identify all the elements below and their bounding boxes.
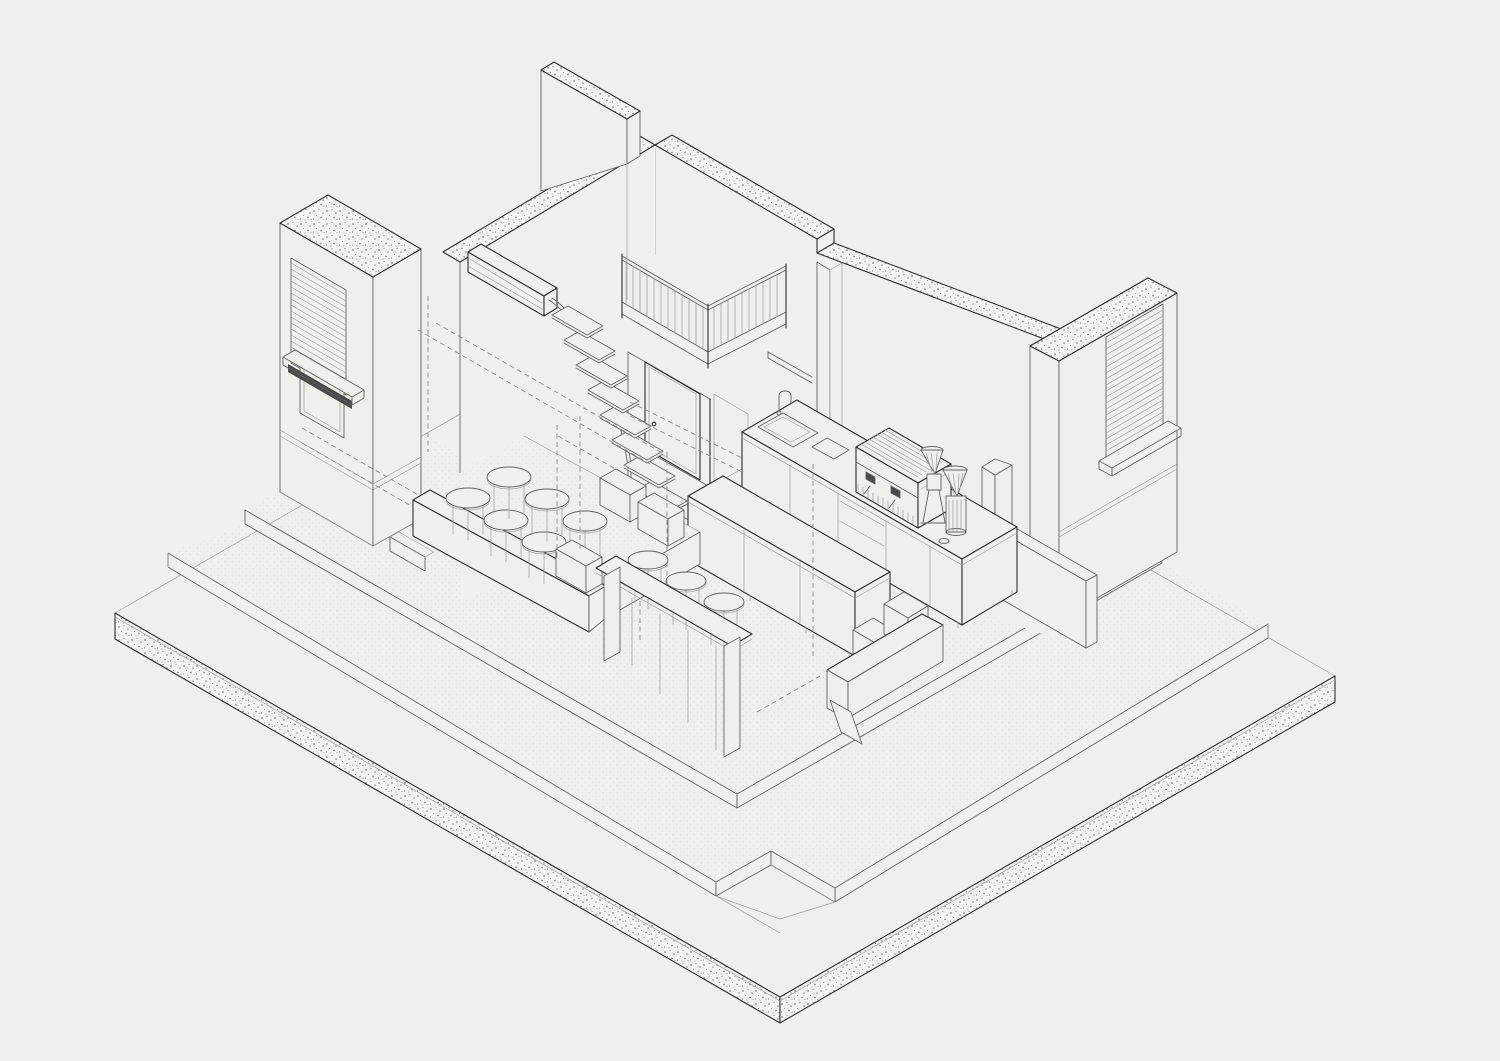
- cafe-axonometric-drawing: [0, 0, 1500, 1061]
- left-facade: [280, 195, 421, 546]
- canvas: [0, 0, 1500, 1061]
